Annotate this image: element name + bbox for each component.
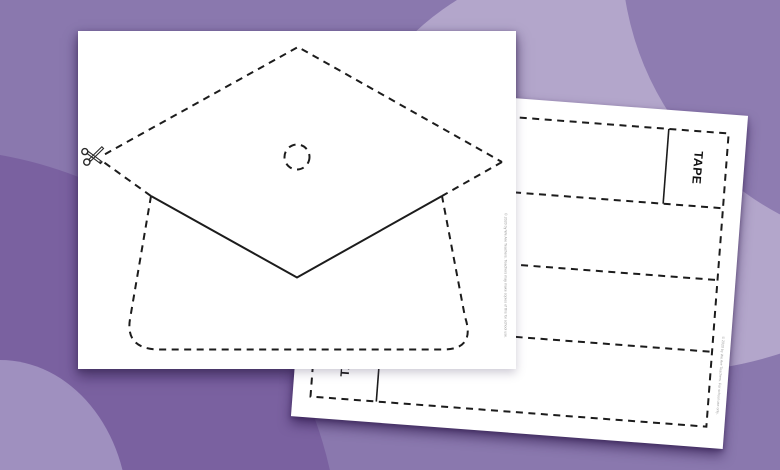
svg-text:© 2020 by We Are Teachers. Tea: © 2020 by We Are Teachers. Teachers may … xyxy=(504,213,508,338)
svg-text:TAPE: TAPE xyxy=(689,150,705,184)
svg-text:© 2020 by We Are Teachers. For: © 2020 by We Are Teachers. For school us… xyxy=(715,336,725,415)
